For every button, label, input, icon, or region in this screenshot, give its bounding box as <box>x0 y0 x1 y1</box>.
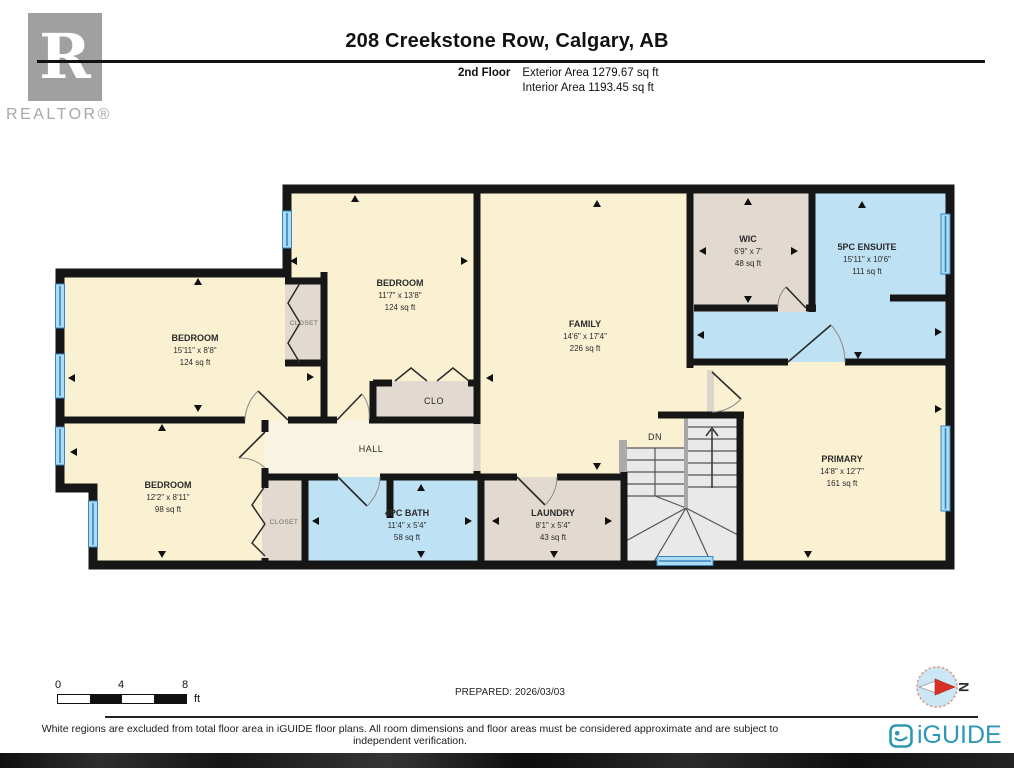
svg-text:6'9" x 7': 6'9" x 7' <box>734 247 762 256</box>
svg-text:11'4" x 5'4": 11'4" x 5'4" <box>388 521 427 530</box>
svg-text:5PC ENSUITE: 5PC ENSUITE <box>837 242 896 252</box>
svg-text:124 sq ft: 124 sq ft <box>385 303 416 312</box>
iguide-logo: iGUIDE <box>889 721 1002 750</box>
svg-text:161 sq ft: 161 sq ft <box>827 479 858 488</box>
doorway-threshold-hall <box>474 424 481 471</box>
closet-upper-label: CLOSET <box>290 320 318 327</box>
svg-text:43 sq ft: 43 sq ft <box>540 533 567 542</box>
compass-north-letter: N <box>956 682 972 692</box>
svg-text:FAMILY: FAMILY <box>569 319 601 329</box>
svg-text:4PC BATH: 4PC BATH <box>385 508 429 518</box>
svg-text:111 sq ft: 111 sq ft <box>852 267 882 276</box>
floorplan-drawing: BEDROOM 15'11" x 8'8" 124 sq ft BEDROOM … <box>0 0 1014 768</box>
scale-tick-8: 8 <box>182 679 188 691</box>
svg-text:48 sq ft: 48 sq ft <box>735 259 762 268</box>
svg-text:LAUNDRY: LAUNDRY <box>531 508 575 518</box>
iguide-wordmark: iGUIDE <box>917 721 1002 750</box>
scale-segment <box>154 695 186 703</box>
footer-rule <box>105 716 978 718</box>
scale-segment <box>90 695 122 703</box>
svg-text:14'8" x 12'7": 14'8" x 12'7" <box>820 467 864 476</box>
svg-text:BEDROOM: BEDROOM <box>145 480 192 490</box>
svg-text:11'7" x 13'8": 11'7" x 13'8" <box>378 291 421 300</box>
svg-text:12'2" x 8'11": 12'2" x 8'11" <box>146 493 189 502</box>
scale-bar: 0 4 8 ft <box>57 694 187 704</box>
compass-icon: N <box>906 662 974 712</box>
bottom-bar <box>0 753 1014 768</box>
svg-text:BEDROOM: BEDROOM <box>377 278 424 288</box>
prepared-date: PREPARED: 2026/03/03 <box>455 687 565 698</box>
footer-disclaimer: White regions are excluded from total fl… <box>30 723 790 747</box>
stair-half-wall <box>619 440 627 473</box>
scale-segment <box>58 695 90 703</box>
iguide-camera-icon <box>889 724 913 748</box>
scale-unit: ft <box>194 693 200 705</box>
svg-text:8'1" x 5'4": 8'1" x 5'4" <box>536 521 571 530</box>
svg-text:15'11" x 10'6": 15'11" x 10'6" <box>843 255 891 264</box>
clo-label: CLO <box>424 396 444 406</box>
svg-text:98 sq ft: 98 sq ft <box>155 505 182 514</box>
hall-label: HALL <box>359 444 384 454</box>
scale-segment <box>122 695 154 703</box>
svg-text:124 sq ft: 124 sq ft <box>180 358 211 367</box>
floorplan-page: R REALTOR® 208 Creekstone Row, Calgary, … <box>0 0 1014 768</box>
svg-text:PRIMARY: PRIMARY <box>821 454 862 464</box>
closet-lower-label: CLOSET <box>270 519 298 526</box>
svg-text:226 sq ft: 226 sq ft <box>570 344 601 353</box>
svg-text:WIC: WIC <box>739 234 757 244</box>
svg-text:BEDROOM: BEDROOM <box>172 333 219 343</box>
stair-divider <box>684 415 688 508</box>
svg-text:58 sq ft: 58 sq ft <box>394 533 421 542</box>
room-fills <box>60 189 950 565</box>
scale-tick-4: 4 <box>118 679 124 691</box>
doorway-threshold-primary <box>707 370 714 412</box>
scale-tick-0: 0 <box>55 679 61 691</box>
stairs-dn-label: DN <box>648 432 662 442</box>
svg-text:15'11" x 8'8": 15'11" x 8'8" <box>173 346 216 355</box>
svg-text:14'6" x 17'4": 14'6" x 17'4" <box>563 332 607 341</box>
